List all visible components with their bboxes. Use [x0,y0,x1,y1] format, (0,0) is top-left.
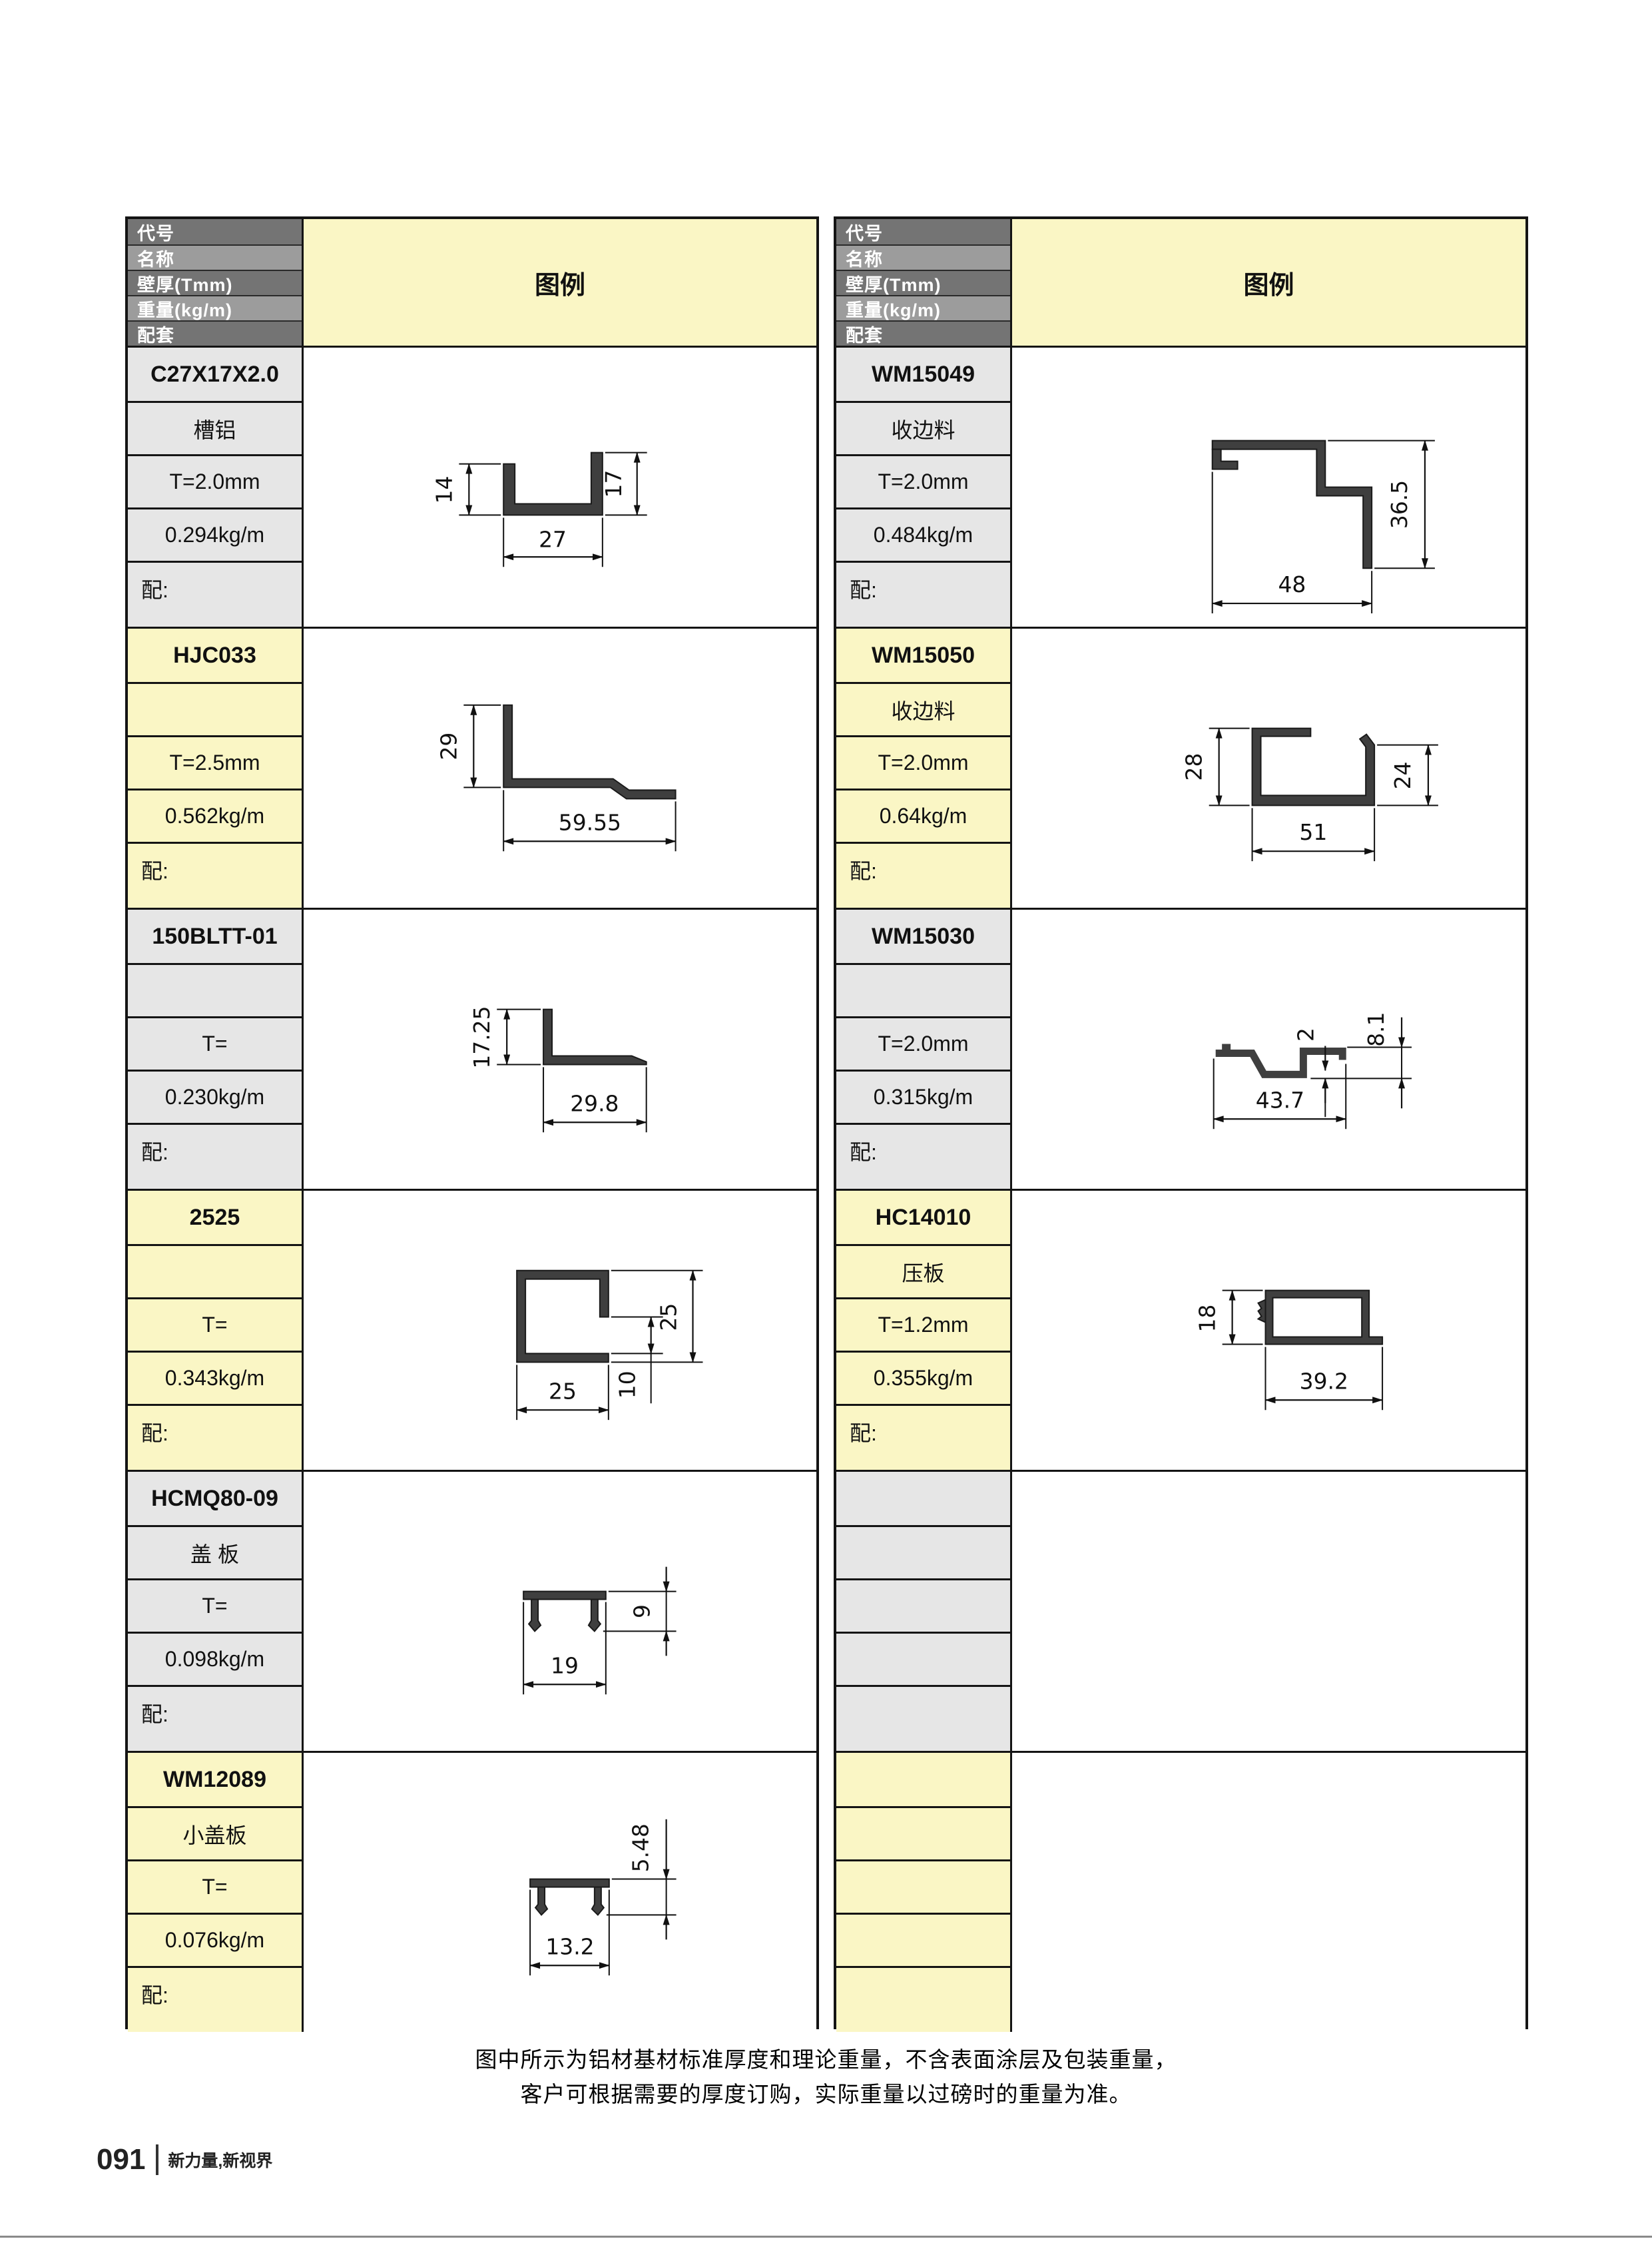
page-footer: 091 新力量,新视界 [97,2143,272,2176]
profile-diagram-empty-1 [1012,1472,1525,1751]
profile-diagram-hjc033: 29 59.55 [304,629,816,908]
label-column: WM15050 收边料 T=2.0mm 0.64kg/m 配: [836,629,1012,908]
dimension-label: 27 [539,526,567,552]
profile-weight: 0.294kg/m [128,507,302,561]
dimension-label: 29 [435,733,461,761]
profile-group-hjc033: HJC033 T=2.5mm 0.562kg/m 配: 29 59.55 [128,627,816,908]
profile-thickness: T=2.0mm [128,454,302,507]
profile-weight: 0.484kg/m [836,507,1010,561]
profile-name: 盖 板 [128,1525,302,1578]
dimension-label: 17 [601,470,627,498]
dimension-label: 13.2 [545,1933,594,1959]
profile-code: WM15050 [836,629,1010,682]
profile-diagram-empty-2 [1012,1753,1525,2032]
profile-weight: 0.076kg/m [128,1913,302,1966]
profile-accessory [836,1685,1010,1751]
dimension-label: 51 [1299,819,1327,845]
profile-code: HC14010 [836,1191,1010,1244]
profile-accessory: 配: [836,1404,1010,1470]
dimension-label: 36.5 [1386,480,1412,529]
footer-tagline: 新力量,新视界 [168,2148,272,2172]
header-label-column: 代号 名称 壁厚(Tmm) 重量(kg/m) 配套 [128,219,304,346]
dimension-label: 59.55 [559,809,621,835]
profile-group-wm15030: WM15030 T=2.0mm 0.315kg/m 配: 2 [836,908,1525,1189]
dimension-label: 10 [615,1371,641,1399]
profile-accessory: 配: [128,842,302,908]
profile-code: WM15030 [836,910,1010,963]
header-code: 代号 [128,219,302,244]
label-column: WM15049 收边料 T=2.0mm 0.484kg/m 配: [836,348,1012,627]
profile-code: HCMQ80-09 [128,1472,302,1525]
profile-name [128,682,302,735]
label-column [836,1472,1012,1751]
header-name: 名称 [128,244,302,270]
label-column: 2525 T= 0.343kg/m 配: [128,1191,304,1470]
profile-code: WM12089 [128,1753,302,1806]
header-label-column: 代号 名称 壁厚(Tmm) 重量(kg/m) 配套 [836,219,1012,346]
profile-diagram-150bltt-01: 17.25 29.8 [304,910,816,1189]
profile-name: 压板 [836,1244,1010,1297]
label-column: 150BLTT-01 T= 0.230kg/m 配: [128,910,304,1189]
profile-group-wm12089: WM12089 小盖板 T= 0.076kg/m 配: 5.48 [128,1751,816,2032]
profile-thickness: T= [128,1016,302,1070]
label-column: WM12089 小盖板 T= 0.076kg/m 配: [128,1753,304,2032]
footer-divider [156,2144,158,2175]
label-column: HCMQ80-09 盖 板 T= 0.098kg/m 配: [128,1472,304,1751]
profile-group-empty-2 [836,1751,1525,2032]
profile-diagram-c27x17x2-0: 14 17 27 [304,348,816,627]
dimension-label: 2 [1292,1028,1318,1042]
profile-weight [836,1913,1010,1966]
profile-weight [836,1632,1010,1685]
dimension-label: 14 [431,476,457,504]
profile-weight: 0.230kg/m [128,1070,302,1123]
table-header: 代号 名称 壁厚(Tmm) 重量(kg/m) 配套 图例 [836,219,1525,346]
profile-accessory: 配: [836,842,1010,908]
dimension-label: 17.25 [469,1006,495,1068]
profile-name: 小盖板 [128,1806,302,1859]
profile-thickness: T= [128,1578,302,1632]
dimension-label: 8.1 [1363,1012,1389,1046]
profile-accessory: 配: [128,561,302,627]
profile-diagram-wm15050: 28 24 51 [1012,629,1525,908]
dimension-label: 39.2 [1300,1368,1348,1394]
profile-weight: 0.315kg/m [836,1070,1010,1123]
dimension-label: 19 [551,1652,579,1678]
profile-accessory: 配: [128,1404,302,1470]
profile-weight: 0.098kg/m [128,1632,302,1685]
header-thickness: 壁厚(Tmm) [836,270,1010,295]
profile-name: 槽铝 [128,401,302,454]
profile-thickness: T= [128,1859,302,1913]
header-weight: 重量(kg/m) [836,295,1010,320]
profile-thickness: T=2.5mm [128,735,302,789]
spec-table-right: 代号 名称 壁厚(Tmm) 重量(kg/m) 配套 图例 WM15049 收边料… [834,216,1528,2029]
profile-diagram-hc14010: 18 39.2 [1012,1191,1525,1470]
profile-code: WM15049 [836,348,1010,401]
profile-diagram-wm15049: 36.5 48 [1012,348,1525,627]
profile-code [836,1472,1010,1525]
profile-accessory: 配: [836,561,1010,627]
profile-group-hcmq80-09: HCMQ80-09 盖 板 T= 0.098kg/m 配: 9 [128,1470,816,1751]
profile-group-2525: 2525 T= 0.343kg/m 配: 10 25 [128,1189,816,1470]
profile-thickness: T=1.2mm [836,1297,1010,1351]
profile-thickness: T=2.0mm [836,735,1010,789]
header-name: 名称 [836,244,1010,270]
profile-code: HJC033 [128,629,302,682]
legend-title: 图例 [1012,219,1525,346]
profile-diagram-wm15030: 2 8.1 43.7 [1012,910,1525,1189]
profile-diagram-hcmq80-09: 9 19 [304,1472,816,1751]
dimension-label: 43.7 [1256,1087,1304,1113]
profile-code [836,1753,1010,1806]
profile-accessory: 配: [128,1685,302,1751]
profile-thickness: T=2.0mm [836,1016,1010,1070]
spec-table-left: 代号 名称 壁厚(Tmm) 重量(kg/m) 配套 图例 C27X17X2.0 … [125,216,819,2029]
label-column: HC14010 压板 T=1.2mm 0.355kg/m 配: [836,1191,1012,1470]
page-bottom-rule [0,2236,1652,2238]
profile-weight: 0.343kg/m [128,1351,302,1404]
dimension-label: 5.48 [628,1823,654,1872]
profile-name: 收边料 [836,401,1010,454]
label-column: WM15030 T=2.0mm 0.315kg/m 配: [836,910,1012,1189]
profile-thickness [836,1578,1010,1632]
profile-group-wm15050: WM15050 收边料 T=2.0mm 0.64kg/m 配: 28 24 [836,627,1525,908]
footer-note-line2: 客户可根据需要的厚度订购，实际重量以过磅时的重量为准。 [0,2077,1652,2108]
header-accessory: 配套 [836,320,1010,346]
profile-group-150bltt-01: 150BLTT-01 T= 0.230kg/m 配: 17.25 29.8 [128,908,816,1189]
profile-code: 150BLTT-01 [128,910,302,963]
profile-name: 收边料 [836,682,1010,735]
profile-name [128,1244,302,1297]
profile-name [836,1525,1010,1578]
profile-accessory [836,1966,1010,2032]
profile-group-empty-1 [836,1470,1525,1751]
label-column: HJC033 T=2.5mm 0.562kg/m 配: [128,629,304,908]
header-accessory: 配套 [128,320,302,346]
label-column: C27X17X2.0 槽铝 T=2.0mm 0.294kg/m 配: [128,348,304,627]
profile-code: 2525 [128,1191,302,1244]
label-column [836,1753,1012,2032]
profile-weight: 0.355kg/m [836,1351,1010,1404]
dimension-label: 24 [1390,762,1416,790]
profile-thickness [836,1859,1010,1913]
profile-diagram-wm12089: 5.48 13.2 [304,1753,816,2032]
profile-name [836,1806,1010,1859]
profile-group-wm15049: WM15049 收边料 T=2.0mm 0.484kg/m 配: 36.5 48 [836,346,1525,627]
dimension-label: 25 [656,1303,682,1331]
profile-thickness: T=2.0mm [836,454,1010,507]
header-thickness: 壁厚(Tmm) [128,270,302,295]
profile-group-hc14010: HC14010 压板 T=1.2mm 0.355kg/m 配: 18 39.2 [836,1189,1525,1470]
profile-accessory: 配: [128,1966,302,2032]
profile-code: C27X17X2.0 [128,348,302,401]
page-number: 091 [97,2143,145,2176]
dimension-label: 25 [549,1378,577,1404]
dimension-label: 48 [1278,571,1306,597]
table-header: 代号 名称 壁厚(Tmm) 重量(kg/m) 配套 图例 [128,219,816,346]
dimension-label: 18 [1195,1305,1221,1333]
profile-accessory: 配: [128,1123,302,1189]
profile-group-c27x17x2-0: C27X17X2.0 槽铝 T=2.0mm 0.294kg/m 配: 14 17 [128,346,816,627]
footer-note-line1: 图中所示为铝材基材标准厚度和理论重量，不含表面涂层及包装重量， [0,2042,1652,2074]
dimension-label: 9 [629,1604,655,1618]
profile-weight: 0.562kg/m [128,789,302,842]
dimension-label: 28 [1181,753,1207,781]
header-code: 代号 [836,219,1010,244]
catalog-page: 代号 名称 壁厚(Tmm) 重量(kg/m) 配套 图例 C27X17X2.0 … [0,0,1652,2241]
profile-name [128,963,302,1016]
header-weight: 重量(kg/m) [128,295,302,320]
dimension-label: 29.8 [570,1090,619,1116]
profile-accessory: 配: [836,1123,1010,1189]
legend-title: 图例 [304,219,816,346]
profile-thickness: T= [128,1297,302,1351]
profile-name [836,963,1010,1016]
profile-weight: 0.64kg/m [836,789,1010,842]
profile-diagram-2525: 10 25 25 [304,1191,816,1470]
